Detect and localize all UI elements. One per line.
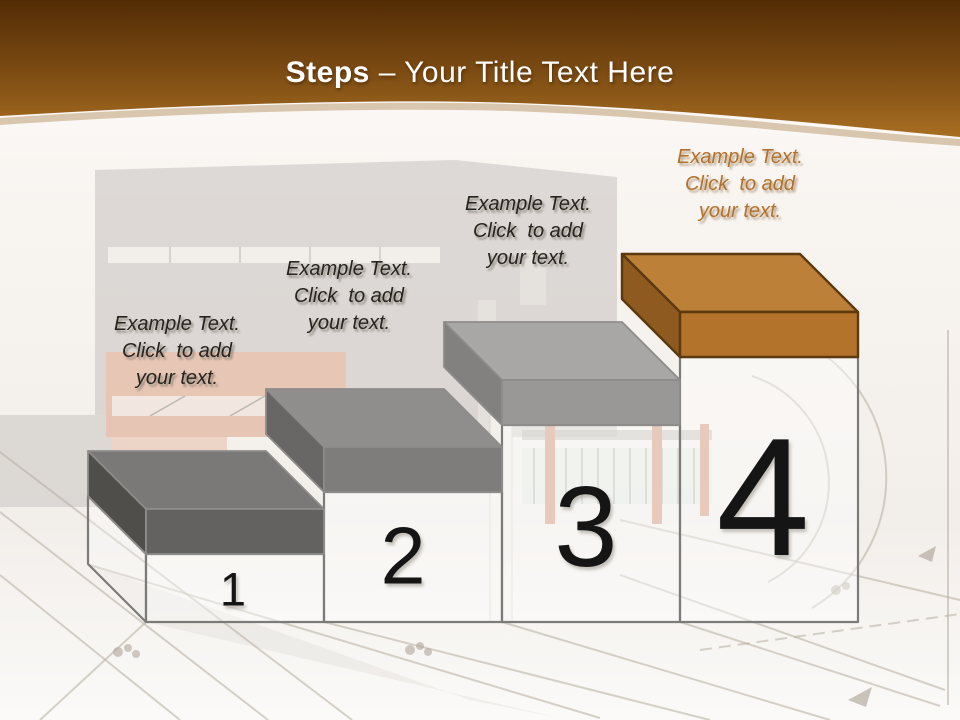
title-emphasis: Steps	[286, 56, 370, 89]
step-3-platform-front	[502, 380, 680, 425]
step-4-platform-front	[680, 312, 858, 357]
label-line: Click to add	[628, 171, 852, 198]
step-4-number: 4	[716, 413, 809, 581]
label-line: your text.	[416, 245, 640, 272]
label-line: Click to add	[237, 283, 461, 310]
slide-title[interactable]: Steps – Your Title Text Here	[0, 56, 960, 90]
label-line: Example Text.	[416, 191, 640, 218]
label-line: your text.	[628, 198, 852, 225]
step-2-platform-front	[324, 447, 502, 492]
label-line: Click to add	[65, 338, 289, 365]
step-1-platform-front	[146, 509, 324, 554]
step-3-label[interactable]: Example Text. Click to add your text.	[416, 191, 640, 272]
step-3-platform[interactable]	[444, 322, 680, 425]
title-text: – Your Title Text Here	[370, 56, 674, 89]
step-2-number: 2	[380, 517, 425, 598]
slide: 1 2 3 4 Example Text. Click to add your …	[0, 0, 960, 720]
label-line: Click to add	[416, 218, 640, 245]
step-1-number: 1	[220, 566, 246, 613]
label-line: your text.	[237, 310, 461, 337]
step-3-number: 3	[554, 471, 617, 585]
step-4-platform[interactable]	[622, 254, 858, 357]
step-2-platform[interactable]	[266, 389, 502, 492]
label-line: your text.	[65, 365, 289, 392]
